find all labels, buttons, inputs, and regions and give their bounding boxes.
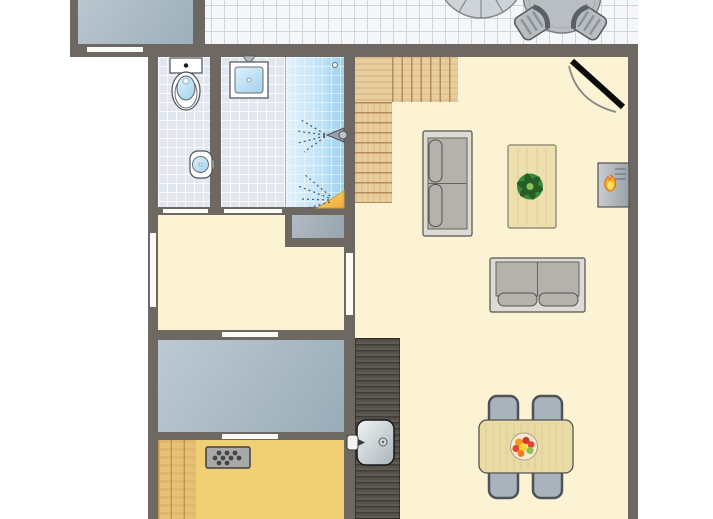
floor-plan (0, 0, 713, 519)
sauna-heater (206, 447, 250, 468)
toilet (170, 58, 202, 110)
shower-fittings (297, 63, 347, 209)
hand-basin (190, 151, 214, 178)
dining-table (479, 420, 573, 473)
kitchen-sink (347, 420, 394, 465)
fireplace (598, 163, 629, 207)
parasol (437, 0, 525, 18)
washbasin (230, 56, 268, 98)
coffee-table (508, 145, 556, 228)
sofa-bottom (490, 258, 585, 312)
sofa-left (423, 131, 472, 236)
furniture-layer (0, 0, 713, 519)
tv (569, 61, 623, 112)
